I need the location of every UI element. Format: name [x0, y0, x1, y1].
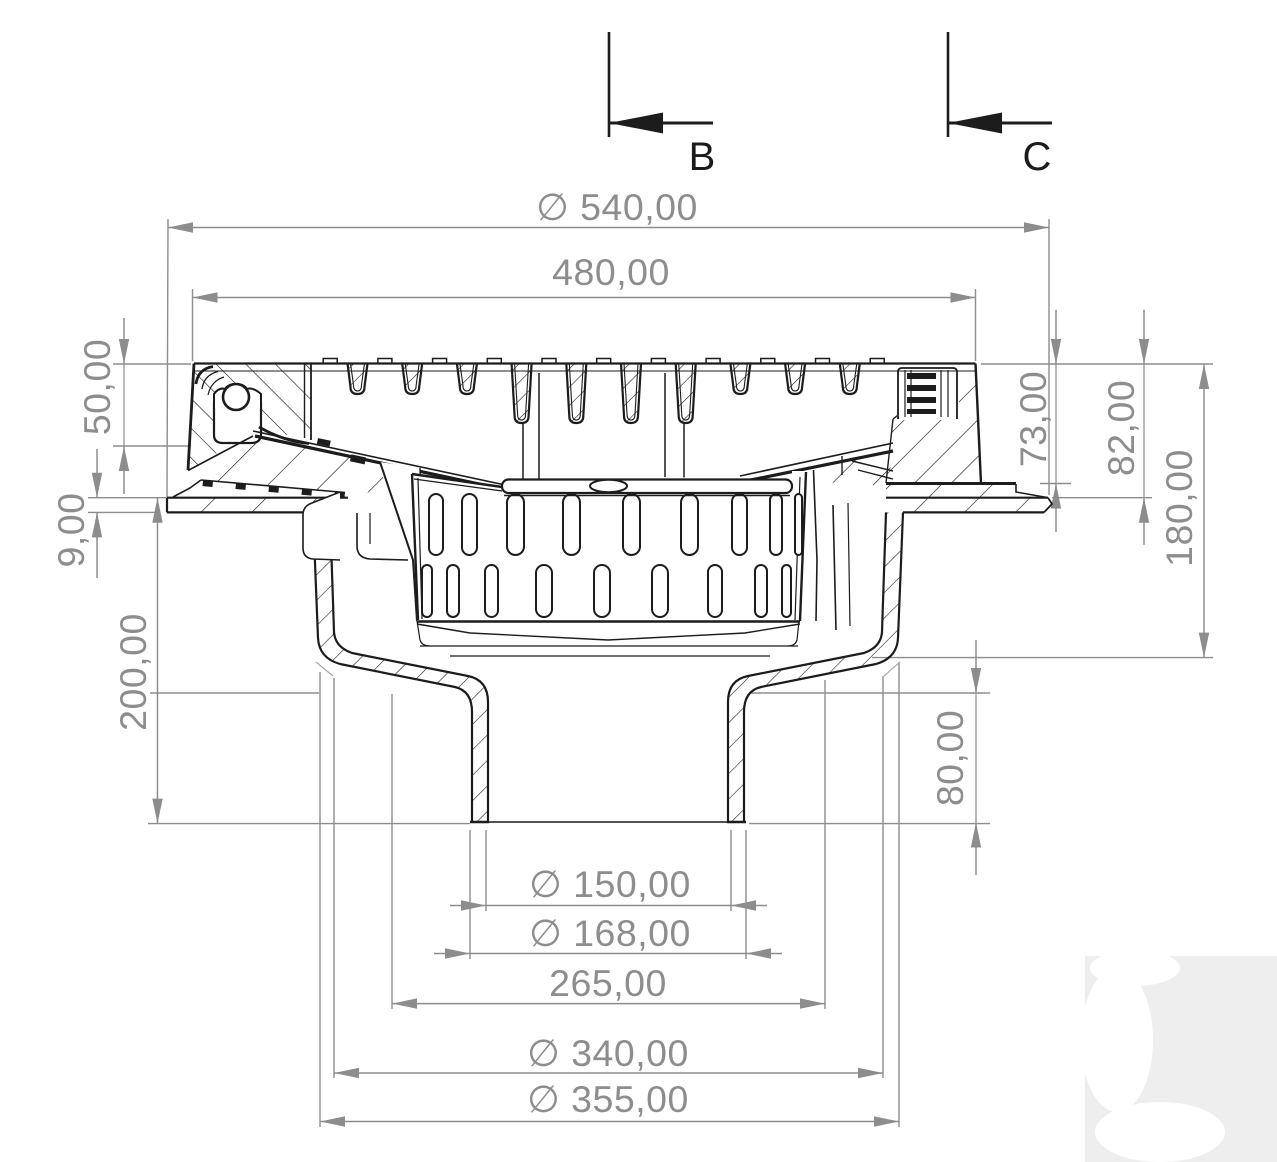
svg-text:C: C [1023, 135, 1052, 179]
svg-text:480,00: 480,00 [552, 251, 670, 293]
svg-text:50,00: 50,00 [76, 339, 118, 435]
svg-text:∅ 355,00: ∅ 355,00 [527, 1078, 689, 1120]
svg-text:9,00: 9,00 [50, 493, 92, 568]
svg-text:80,00: 80,00 [929, 710, 971, 806]
svg-text:∅ 150,00: ∅ 150,00 [529, 863, 691, 905]
svg-text:∅ 340,00: ∅ 340,00 [527, 1032, 689, 1074]
svg-text:265,00: 265,00 [549, 962, 667, 1004]
svg-text:180,00: 180,00 [1158, 449, 1200, 567]
svg-text:73,00: 73,00 [1012, 371, 1054, 467]
svg-text:82,00: 82,00 [1100, 380, 1142, 476]
svg-text:∅ 168,00: ∅ 168,00 [529, 912, 691, 954]
svg-text:200,00: 200,00 [112, 613, 154, 731]
svg-text:∅ 540,00: ∅ 540,00 [536, 186, 698, 228]
svg-text:B: B [689, 135, 716, 179]
